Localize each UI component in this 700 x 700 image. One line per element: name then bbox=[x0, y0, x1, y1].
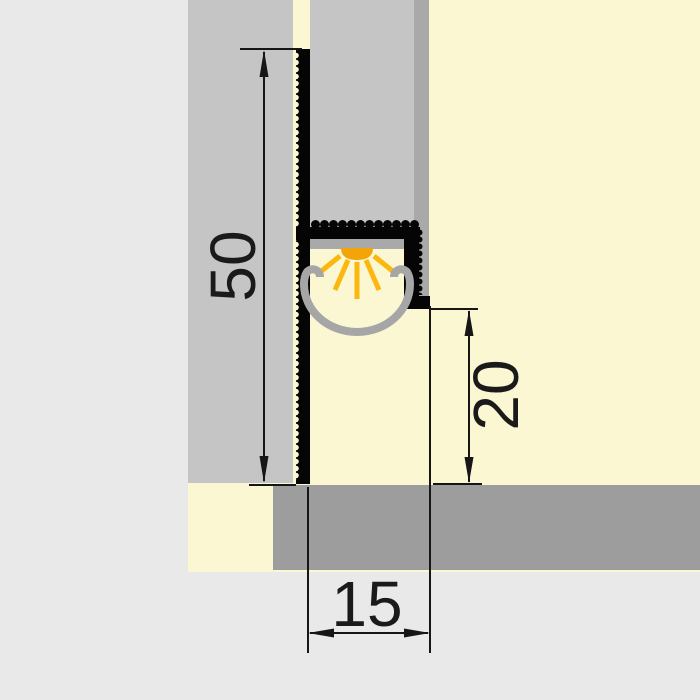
wall-board-right bbox=[310, 0, 429, 227]
led-mounting-plate bbox=[310, 239, 404, 249]
background-left bbox=[0, 0, 188, 572]
dimension-label-height: 50 bbox=[197, 230, 269, 301]
led-profile-cross-section: 50 20 15 bbox=[0, 0, 700, 700]
profile-top-web bbox=[296, 227, 420, 240]
technical-drawing-canvas: 50 20 15 bbox=[0, 0, 700, 700]
wall-band-bottom bbox=[273, 485, 700, 570]
profile-right-serration bbox=[416, 229, 423, 295]
profile-flange-perforations bbox=[293, 52, 299, 480]
dimension-label-depth: 20 bbox=[460, 359, 532, 430]
dimension-label-width: 15 bbox=[331, 568, 402, 640]
